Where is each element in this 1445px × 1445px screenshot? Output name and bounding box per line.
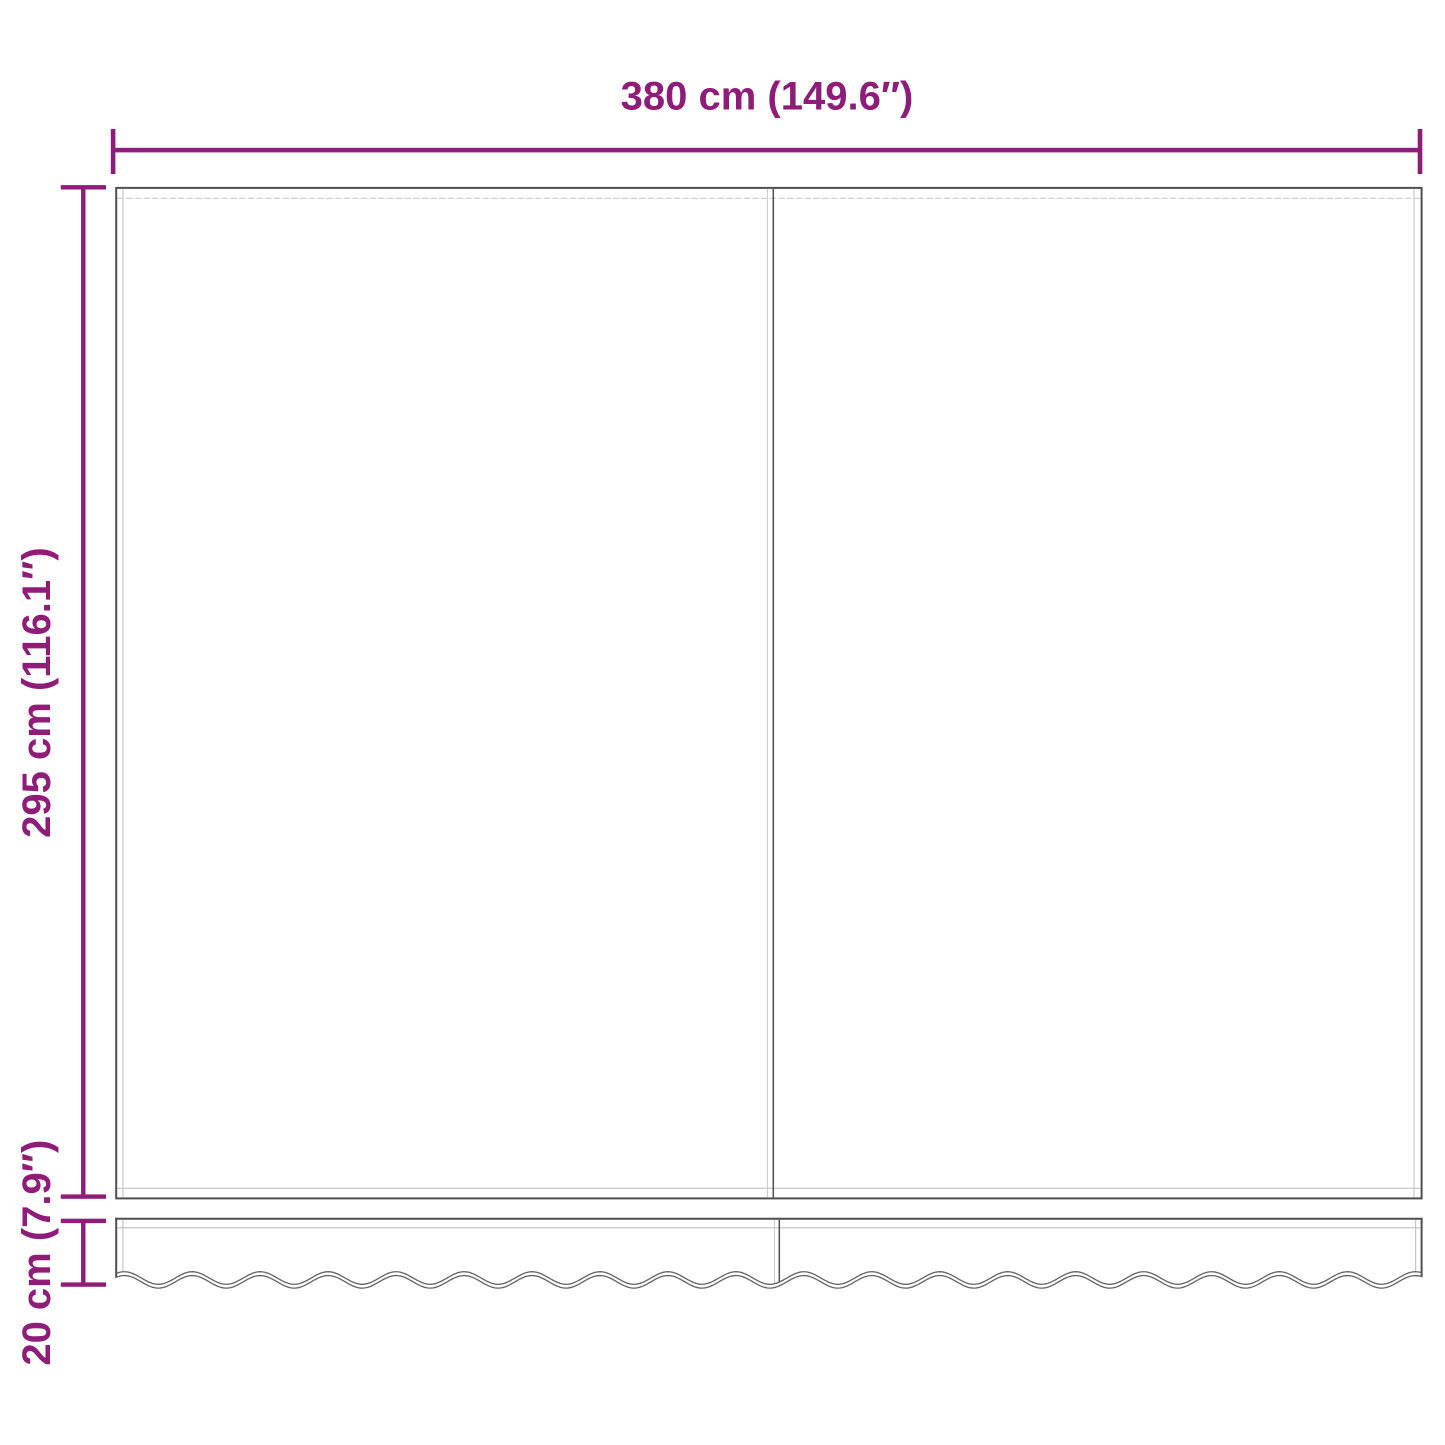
svg-text:295 cm (116.1″): 295 cm (116.1″) <box>15 547 59 837</box>
svg-text:380 cm (149.6″): 380 cm (149.6″) <box>621 74 914 118</box>
svg-text:20 cm (7.9″): 20 cm (7.9″) <box>15 1140 59 1366</box>
